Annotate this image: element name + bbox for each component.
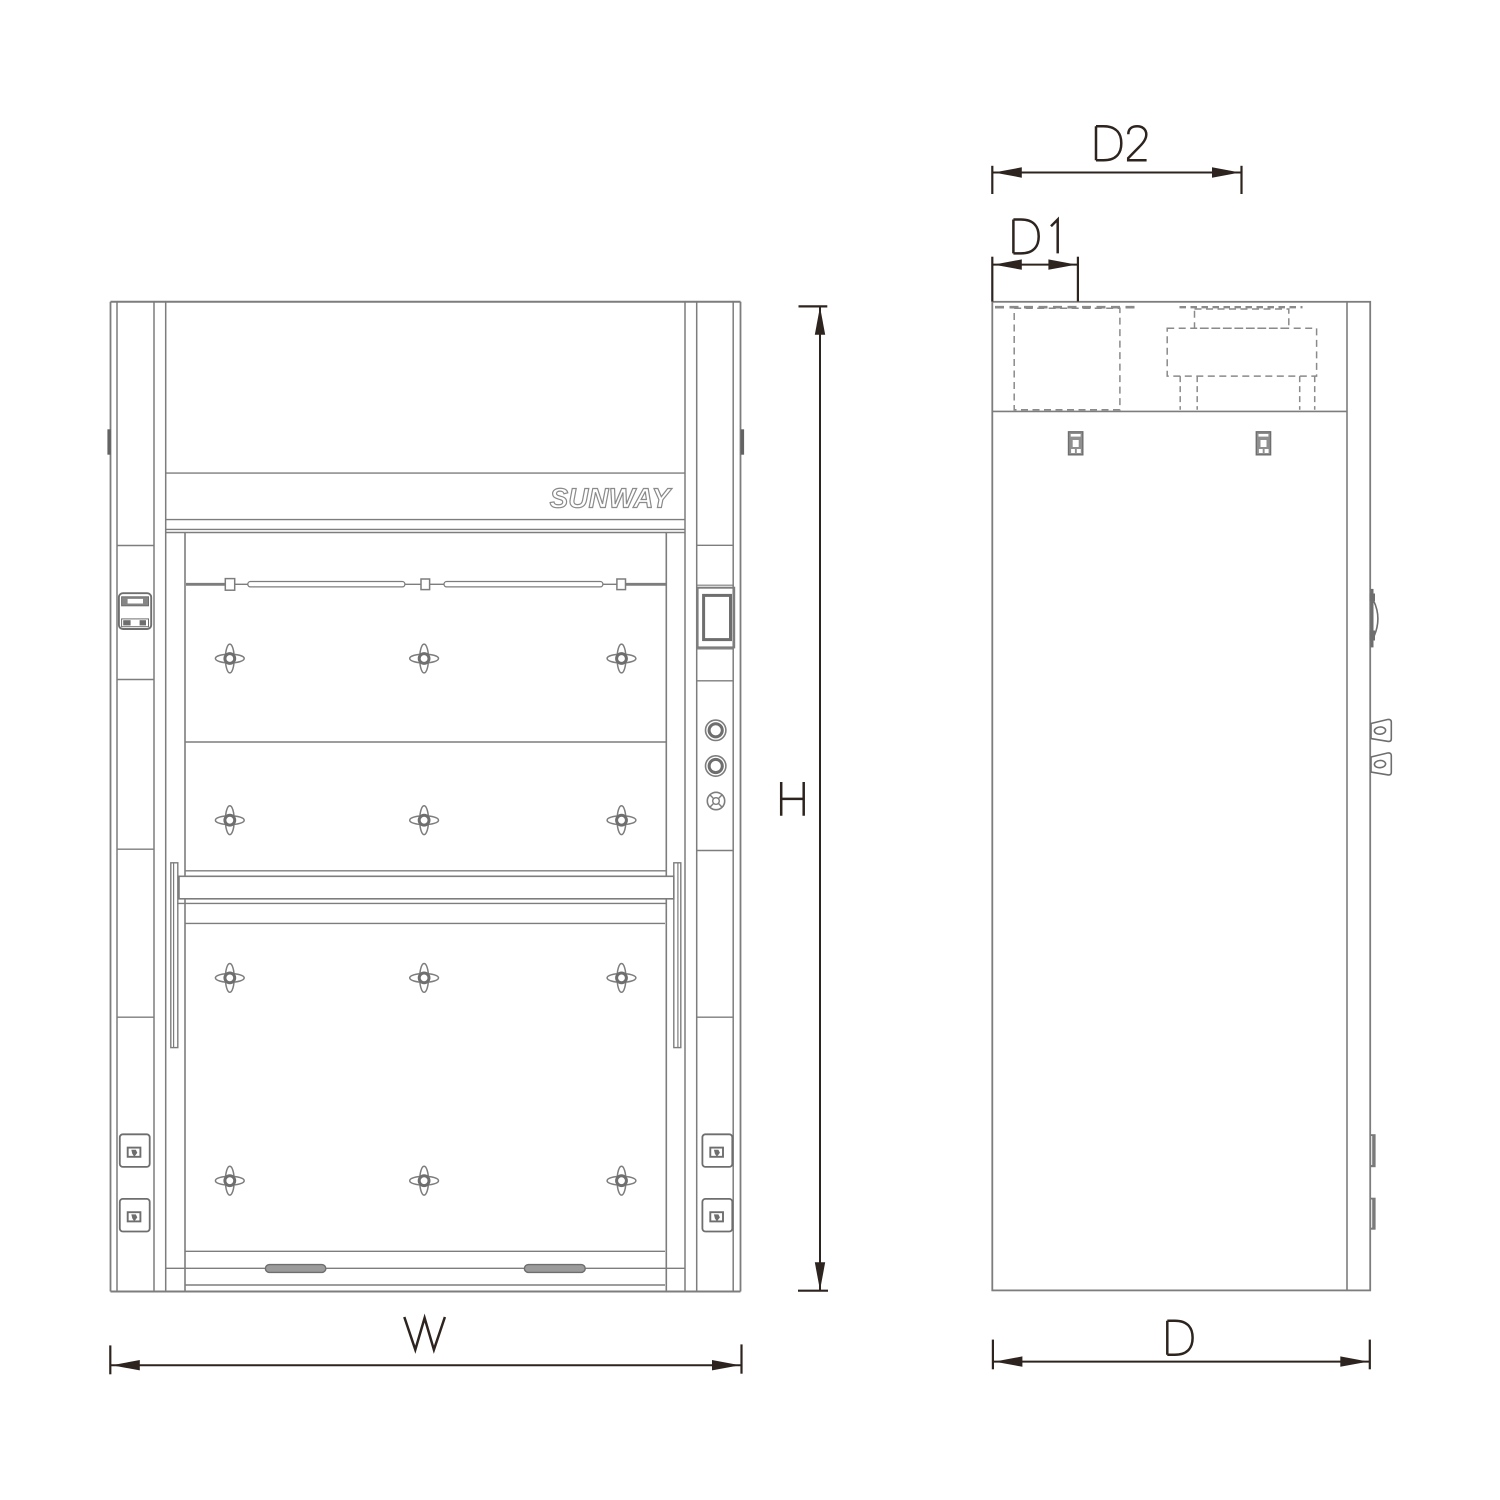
svg-text:SUNWAY: SUNWAY	[550, 483, 673, 514]
